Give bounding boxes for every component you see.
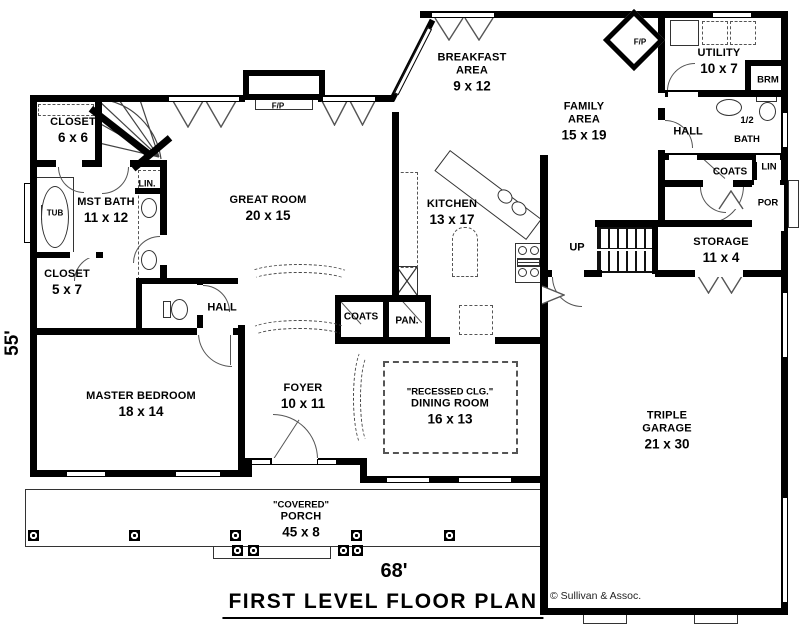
porch-post <box>351 530 362 541</box>
label-hall-right-text: HALL <box>673 126 702 138</box>
window <box>317 459 337 465</box>
dryer <box>730 21 756 45</box>
room-label-dining-room-text: "RECESSED CLG." <box>407 386 494 397</box>
vanity-sink <box>141 198 157 218</box>
room-label-kitchen-text: 13 x 17 <box>427 212 477 228</box>
wall <box>335 337 545 344</box>
toilet-tank <box>163 301 171 318</box>
wall <box>540 155 548 615</box>
plan-title: FIRST LEVEL FLOOR PLAN <box>222 590 543 619</box>
wall <box>136 278 142 330</box>
oven-x-mark <box>396 266 418 296</box>
label-coats-left-text: COATS <box>344 312 378 323</box>
room-label-closet-upper-text: 6 x 6 <box>50 130 96 146</box>
casement-v-mark <box>205 100 237 128</box>
door-opening <box>197 328 233 335</box>
window <box>782 497 788 603</box>
rear-porch-step <box>788 180 799 228</box>
wall <box>360 458 367 483</box>
casement-v-mark <box>434 17 464 41</box>
dimension-width: 68' <box>380 560 407 583</box>
room-label-master-bedroom-text: MASTER BEDROOM <box>86 390 196 403</box>
porch-post <box>230 530 241 541</box>
wall <box>745 60 787 66</box>
room-label-porch-text: "COVERED" <box>273 499 329 510</box>
porch-post <box>352 545 363 556</box>
bath-door-arc <box>102 167 129 194</box>
door-opening <box>56 160 82 167</box>
room-label-porch: "COVERED"PORCH45 x 8 <box>273 499 329 540</box>
window <box>24 183 31 243</box>
room-label-porch-text: PORCH <box>273 511 329 524</box>
room-label-breakfast-area: BREAKFAST AREA9 x 12 <box>437 52 506 95</box>
window <box>782 292 788 358</box>
room-label-family-area-text: 15 x 19 <box>561 128 606 144</box>
label-stairs-up: UP <box>569 238 584 257</box>
wall <box>95 95 102 165</box>
archway-curve <box>251 272 347 290</box>
door-opening <box>658 120 665 150</box>
wall <box>30 95 37 477</box>
room-label-great-room: GREAT ROOM20 x 15 <box>230 194 307 224</box>
label-pantry: PAN. <box>395 311 418 330</box>
door-opening <box>552 270 584 277</box>
label-linen-left: LIN. <box>139 174 156 193</box>
room-label-great-room-text: 20 x 15 <box>230 208 307 224</box>
burner <box>530 246 539 255</box>
burner <box>530 268 539 277</box>
dimension-height: 55' <box>2 321 24 365</box>
label-linen-left-text: LIN. <box>139 179 156 189</box>
room-label-great-room-text: GREAT ROOM <box>230 194 307 207</box>
wall <box>238 325 245 477</box>
label-coats-left: COATS <box>344 307 378 326</box>
porch-post <box>232 545 243 556</box>
label-half-bath: 1/2 BATH <box>734 110 760 148</box>
room-label-foyer-text: FOYER <box>281 382 325 395</box>
wall <box>540 608 788 615</box>
label-fireplace-great-text: F/P <box>272 102 284 111</box>
toilet-bowl <box>171 299 188 320</box>
room-label-dining-room-text: 16 x 13 <box>407 412 494 428</box>
fireplace-firebox <box>249 76 319 94</box>
wall <box>652 222 658 274</box>
room-label-family-area-text: FAMILY AREA <box>561 101 606 127</box>
porch-post <box>338 545 349 556</box>
room-label-closet-lower: CLOSET5 x 7 <box>44 268 90 298</box>
casement-v-mark <box>464 17 494 41</box>
room-label-utility: UTILITY10 x 7 <box>698 47 741 77</box>
label-half-bath-text: 1/2 BATH <box>734 115 760 145</box>
stove-grill <box>517 258 540 267</box>
door-opening <box>102 160 130 167</box>
door-opening <box>703 180 733 187</box>
kitchen-island <box>452 227 478 277</box>
copyright-text: © Sullivan & Assoc. <box>550 590 641 602</box>
label-linen-right: LIN <box>761 157 776 176</box>
door-opening <box>272 458 318 464</box>
window <box>712 12 752 18</box>
room-label-mst-bath: MST BATH11 x 12 <box>77 196 135 226</box>
staircase-rail <box>597 248 655 251</box>
label-broom-text: BRM <box>757 75 779 86</box>
room-label-master-bedroom: MASTER BEDROOM18 x 14 <box>86 390 196 420</box>
room-label-dining-room: "RECESSED CLG."DINING ROOM16 x 13 <box>407 386 494 427</box>
wall <box>745 60 751 92</box>
bedroom-door-arc <box>198 333 232 367</box>
room-label-kitchen-text: KITCHEN <box>427 198 477 211</box>
window <box>251 459 271 465</box>
window <box>458 477 512 483</box>
room-label-garage-text: TRIPLE GARAGE <box>642 410 691 436</box>
label-tub: TUB <box>47 203 63 222</box>
room-label-storage: STORAGE11 x 4 <box>693 236 749 266</box>
bedroom-door-leaf <box>230 332 231 365</box>
front-door-arc <box>273 414 318 459</box>
door-opening <box>450 337 495 344</box>
room-label-utility-text: 10 x 7 <box>698 61 741 77</box>
archway-curve <box>360 354 378 444</box>
wall <box>136 278 238 284</box>
label-fireplace-family-text: F/P <box>634 38 646 47</box>
window <box>431 12 495 18</box>
door-opening <box>669 155 697 162</box>
label-hall-left-text: HALL <box>207 302 236 314</box>
label-rear-porch-text: POR <box>758 198 779 209</box>
window <box>66 471 106 477</box>
washer <box>702 21 728 45</box>
porch-post <box>444 530 455 541</box>
porch-post <box>248 545 259 556</box>
label-coats-right: COATS <box>713 162 747 181</box>
refrigerator-cabinet <box>396 172 418 268</box>
room-label-mst-bath-text: MST BATH <box>77 196 135 209</box>
room-label-dining-room-text: DINING ROOM <box>407 398 494 411</box>
door-opening <box>668 92 698 99</box>
room-label-porch-text: 45 x 8 <box>273 525 329 541</box>
label-pantry-text: PAN. <box>395 316 418 327</box>
label-coats-right-text: COATS <box>713 167 747 178</box>
door-opening <box>160 235 167 265</box>
label-broom: BRM <box>757 70 779 89</box>
wall <box>658 183 665 223</box>
casement-v-mark <box>321 100 348 126</box>
label-fireplace-family: F/P <box>634 32 646 51</box>
utility-appliance <box>670 20 699 46</box>
casement-v-mark <box>172 100 204 128</box>
label-stairs-up-text: UP <box>569 242 584 254</box>
window <box>175 471 221 477</box>
window <box>322 96 376 102</box>
window <box>168 96 240 102</box>
room-label-garage: TRIPLE GARAGE21 x 30 <box>642 410 691 453</box>
door-opening <box>695 270 743 277</box>
label-fireplace-great: F/P <box>272 96 284 115</box>
room-label-kitchen: KITCHEN13 x 17 <box>427 198 477 228</box>
kitchen-desk <box>459 305 493 335</box>
burner <box>518 246 527 255</box>
wall <box>425 295 431 344</box>
wall <box>383 295 389 344</box>
room-label-foyer: FOYER10 x 11 <box>281 382 325 412</box>
label-hall-right: HALL <box>673 122 702 141</box>
room-label-breakfast-area-text: BREAKFAST AREA <box>437 52 506 78</box>
bay-window <box>394 27 432 95</box>
porch-step <box>213 546 331 559</box>
label-linen-right-text: LIN <box>761 162 776 173</box>
wall <box>392 112 399 302</box>
label-hall-left: HALL <box>207 298 236 317</box>
floor-plan-canvas: 55' 68' FIRST LEVEL FLOOR PLAN © Sulliva… <box>0 0 800 633</box>
door-opening <box>70 252 96 258</box>
room-label-closet-upper-text: CLOSET <box>50 116 96 129</box>
room-label-mst-bath-text: 11 x 12 <box>77 210 135 226</box>
label-tub-text: TUB <box>47 209 63 218</box>
closet-shelf <box>38 104 94 116</box>
room-label-closet-lower-text: CLOSET <box>44 268 90 281</box>
casement-v-mark <box>720 275 743 294</box>
casement-v-mark <box>349 100 376 126</box>
utility-door-arc <box>667 63 695 91</box>
room-label-master-bedroom-text: 18 x 14 <box>86 404 196 420</box>
archway-curve <box>253 328 345 346</box>
toilet-bowl <box>759 102 776 121</box>
burner <box>518 268 527 277</box>
room-label-closet-upper: CLOSET6 x 6 <box>50 116 96 146</box>
room-label-storage-text: 11 x 4 <box>693 250 749 266</box>
room-label-storage-text: STORAGE <box>693 236 749 249</box>
casement-v-mark <box>718 190 744 210</box>
casement-v-mark <box>697 275 720 294</box>
room-label-garage-text: 21 x 30 <box>642 437 691 453</box>
casement-v-mark <box>541 285 565 305</box>
label-rear-porch: POR <box>758 193 779 212</box>
window <box>386 477 430 483</box>
wall <box>658 13 665 93</box>
room-label-utility-text: UTILITY <box>698 47 741 60</box>
room-label-closet-lower-text: 5 x 7 <box>44 282 90 298</box>
room-label-breakfast-area-text: 9 x 12 <box>437 79 506 95</box>
porch-post <box>28 530 39 541</box>
room-label-foyer-text: 10 x 11 <box>281 396 325 412</box>
room-label-family-area: FAMILY AREA15 x 19 <box>561 101 606 144</box>
porch-post <box>129 530 140 541</box>
door-opening <box>197 285 203 315</box>
window <box>782 112 788 148</box>
